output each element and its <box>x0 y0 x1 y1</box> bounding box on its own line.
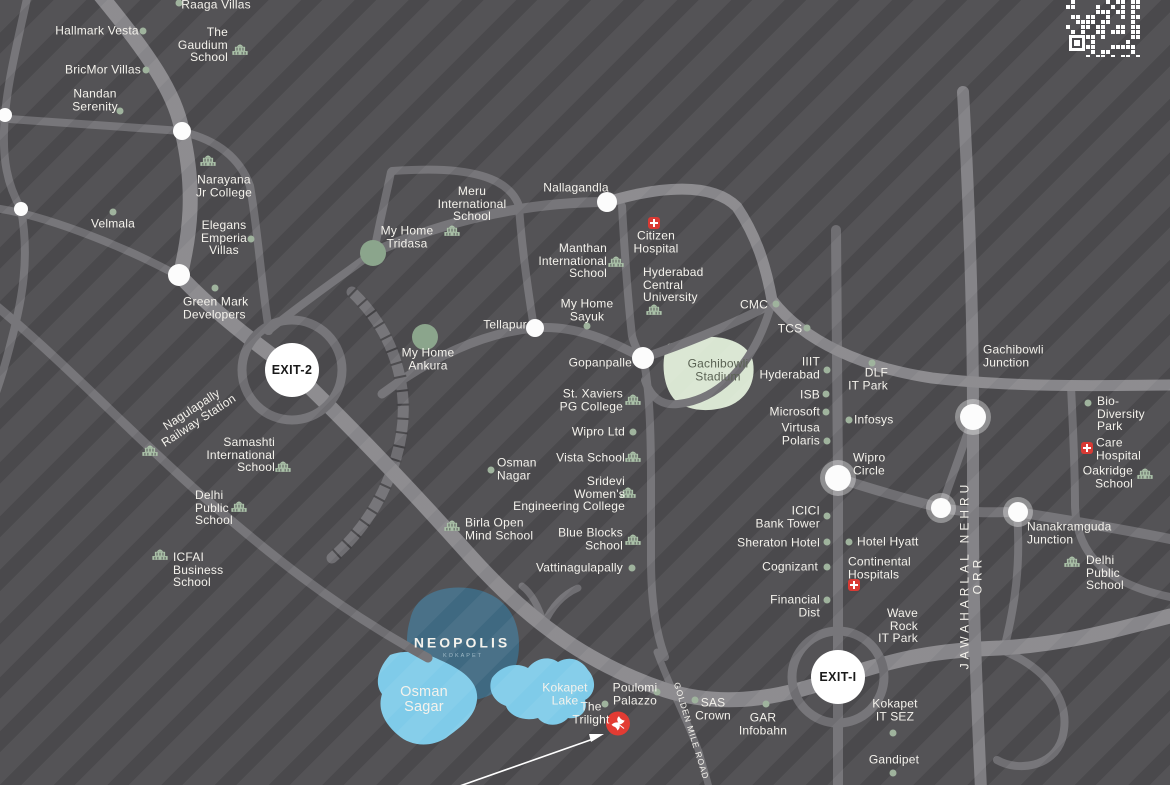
label-tellapur: Tellapur <box>483 319 527 332</box>
label-poulomi: Poulomi Palazzo <box>613 681 658 706</box>
label-my-home: My Home Tridasa <box>381 224 434 249</box>
label-vista-school: Vista School <box>556 452 625 465</box>
label-financial: Financial Dist <box>770 593 820 618</box>
label-nanakramguda: Nanakramguda Junction <box>1027 520 1111 545</box>
label-sas: SAS Crown <box>695 696 731 721</box>
label-st-xaviers: St. Xaviers PG College <box>560 387 623 412</box>
label-the: The Trilight <box>572 700 609 725</box>
label-narayana: Narayana Jr College <box>196 173 252 198</box>
label-delhi: Delhi Public School <box>195 489 233 527</box>
qr-code <box>1066 0 1141 57</box>
label-gar: GAR Infobahn <box>739 711 787 736</box>
label-sridevi: Sridevi Women's Engineering College <box>513 475 625 513</box>
label-raaga-villas: Raaga Villas <box>181 0 251 11</box>
label-hyderabad: Hyderabad Central University <box>643 266 704 304</box>
label-tcs: TCS <box>778 323 803 336</box>
label-wipro: Wipro Circle <box>853 451 885 476</box>
label-samashti: Samashti International School <box>206 436 275 474</box>
label-the: The Gaudium School <box>178 26 228 64</box>
location-map: Raaga VillasHallmark VestaThe Gaudium Sc… <box>0 0 1170 785</box>
label-nandan: Nandan Serenity <box>72 87 118 112</box>
label-citizen: Citizen Hospital <box>634 229 679 254</box>
label-infosys: Infosys <box>854 414 893 427</box>
label-elegans: Elegans Emperia Villas <box>201 219 247 257</box>
label-oakridge: Oakridge School <box>1083 464 1133 489</box>
label-isb: ISB <box>800 389 820 402</box>
label-jawaharlal-nehru-orr: JAWAHARLAL NEHRU ORR <box>958 476 983 675</box>
label-green-mark: Green Mark Developers <box>183 295 248 320</box>
label-hallmark-vesta: Hallmark Vesta <box>55 25 139 38</box>
label-kokapet: KOKAPET <box>443 654 483 660</box>
label-my-home: My Home Ankura <box>402 346 455 371</box>
label-nallagandla: Nallagandla <box>543 182 609 195</box>
label-gachibowli: Gachibowli Junction <box>983 343 1044 368</box>
label-meru: Meru International School <box>438 185 507 223</box>
label-kokapet: Kokapet IT SEZ <box>872 697 917 722</box>
label-birla-open: Birla Open Mind School <box>465 516 533 541</box>
label-my-home: My Home Sayuk <box>561 297 614 322</box>
label-hotel-hyatt: Hotel Hyatt <box>857 536 919 549</box>
label-care: Care Hospital <box>1096 436 1141 461</box>
label-microsoft: Microsoft <box>770 406 820 419</box>
label-gandipet: Gandipet <box>869 754 919 767</box>
label-manthan: Manthan International School <box>538 242 607 280</box>
label-icfai: ICFAI Business School <box>173 551 223 589</box>
exit-badge-1: EXIT-2 <box>265 343 319 397</box>
label-wave: Wave Rock IT Park <box>878 607 918 645</box>
label-continental: Continental Hospitals <box>848 555 911 580</box>
label-cmc: CMC <box>740 299 768 312</box>
label-dlf: DLF IT Park <box>848 366 888 391</box>
label-sheraton-hotel: Sheraton Hotel <box>737 537 820 550</box>
qr-finder-pattern <box>1069 35 1085 51</box>
label-gachibowli: Gachibowli Stadium <box>688 357 749 382</box>
label-wipro-ltd: Wipro Ltd <box>572 426 625 439</box>
label-delhi: Delhi Public School <box>1086 554 1124 592</box>
label-bio: Bio- Diversity Park <box>1097 395 1145 433</box>
map-labels: Raaga VillasHallmark VestaThe Gaudium Sc… <box>0 0 1170 785</box>
label-osman: Osman Sagar <box>400 685 448 715</box>
label-cognizant: Cognizant <box>762 561 818 574</box>
label-vattinagulapally: Vattinagulapally <box>536 562 623 575</box>
label-iiit: IIIT Hyderabad <box>759 355 820 380</box>
label-blue-blocks: Blue Blocks School <box>558 526 623 551</box>
label-bricmor-villas: BricMor Villas <box>65 64 141 77</box>
exit-badge-2: EXIT-I <box>811 650 865 704</box>
label-neopolis: NEOPOLIS <box>414 636 510 651</box>
label-icici: ICICI Bank Tower <box>756 504 820 529</box>
label-gopanpalle: Gopanpalle <box>569 357 632 370</box>
label-virtusa: Virtusa Polaris <box>781 421 820 446</box>
label-velmala: Velmala <box>91 218 135 231</box>
